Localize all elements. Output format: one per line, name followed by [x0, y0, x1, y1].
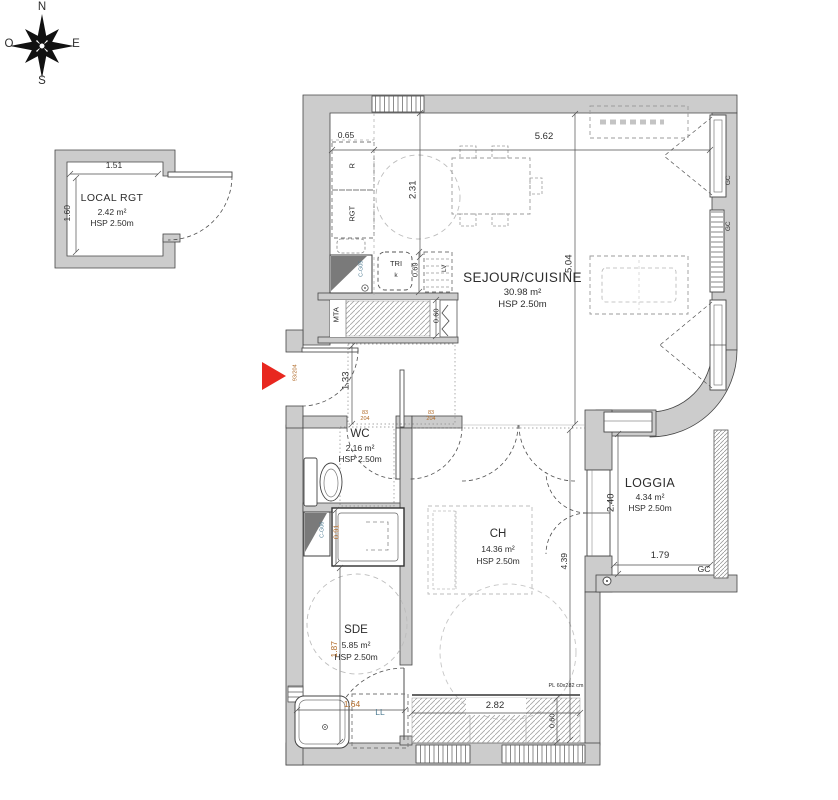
duct-sde-label: C-G06: [320, 508, 326, 552]
compass-o: O: [1, 39, 17, 51]
compass-e: E: [68, 39, 84, 51]
dim-ch-closet: 0.60: [548, 700, 556, 742]
ch-room-hsp: HSP 2.50m: [456, 557, 540, 566]
door-tag-entry: 93/204: [293, 351, 299, 395]
local-room-name: LOCAL RGT: [52, 193, 172, 204]
closet-tag-label: PL 60x282 cm: [528, 684, 604, 690]
dim-ch-length: 4.39: [560, 540, 569, 582]
wc-room-hsp: HSP 2.50m: [324, 455, 396, 464]
dim-appliance-row: 0.69: [411, 249, 419, 291]
sejour-room-area: 30.98 m²: [430, 288, 615, 298]
compass-n: N: [34, 2, 50, 14]
sejour-room-hsp: HSP 2.50m: [430, 300, 615, 310]
loggia-room-name: LOGGIA: [604, 477, 696, 490]
dim-entry-closet: 0.60: [432, 295, 440, 337]
dining-table: [452, 158, 530, 214]
clearance-outlines: [340, 344, 585, 506]
dim-sejour-width: 5.62: [523, 132, 565, 142]
door-tag-height-1: 204: [356, 417, 374, 423]
wc-room-name: WC: [324, 429, 396, 441]
ch-room-name: CH: [456, 529, 540, 541]
dim-sde-length: 1.87: [330, 628, 339, 670]
local-door-arc: [168, 176, 232, 240]
bay-window: [604, 412, 652, 432]
duct-kitchen-label: C-G05: [359, 247, 365, 291]
wc-door-leaf: [396, 428, 400, 479]
dim-shower-width: 0.91: [332, 511, 340, 553]
loggia-door-arc-1: [546, 472, 587, 513]
tri-sub-label: k: [377, 273, 415, 280]
washer-label: LL: [360, 708, 400, 717]
dim-sejour-length: 5.04: [564, 243, 574, 285]
compass-rose: [10, 14, 74, 78]
dishwasher-label: LV: [442, 247, 449, 289]
shower: [332, 508, 404, 566]
sejour-ch-door-arc-1: [462, 425, 518, 481]
sejour-room-name: SEJOUR/CUISINE: [430, 271, 615, 285]
wc-room-area: 2.16 m²: [324, 444, 396, 453]
dim-local-width: 1.51: [94, 161, 134, 170]
ch-room-area: 14.36 m²: [456, 545, 540, 554]
local-room-area: 2.42 m²: [52, 208, 172, 217]
ch-door-leaf: [400, 370, 404, 427]
dim-loggia-width: 1.79: [639, 551, 681, 561]
railing-label-1: GC: [726, 159, 733, 201]
local-room-hsp: HSP 2.50m: [52, 219, 172, 228]
mta-label: MTA: [332, 294, 340, 336]
sejour-ch-door-arc-2: [519, 425, 575, 481]
railing-label-3: GC: [688, 565, 720, 574]
fridge-label: R: [348, 145, 356, 187]
floor-plan: N E S O 1.51 1.60 LOCAL RGT 2.42 m² HSP …: [0, 0, 838, 800]
dim-kitchen-counter: 0.65: [326, 131, 366, 140]
loggia-room-area: 4.34 m²: [604, 493, 696, 502]
dim-hall-width: 1.33: [341, 360, 351, 402]
floor-plan-drawing: [0, 0, 838, 800]
dim-ch-width: 2.82: [474, 701, 516, 711]
tri-label: TRI: [377, 260, 415, 268]
tri-bin: [378, 252, 412, 290]
local-door-leaf: [168, 172, 232, 177]
railing-label-2: GC: [726, 205, 733, 247]
door-tag-height-2: 204: [422, 417, 440, 423]
toilet-tank: [304, 458, 317, 506]
dim-kitchen-length: 2.31: [408, 169, 418, 211]
ch-door-arc: [410, 427, 462, 479]
dim-loggia-depth: 2.40: [606, 482, 616, 524]
entry-arrow: [262, 362, 286, 390]
storage-label: RGT: [348, 193, 356, 235]
loggia-room-hsp: HSP 2.50m: [604, 504, 696, 513]
compass-s: S: [34, 76, 50, 88]
